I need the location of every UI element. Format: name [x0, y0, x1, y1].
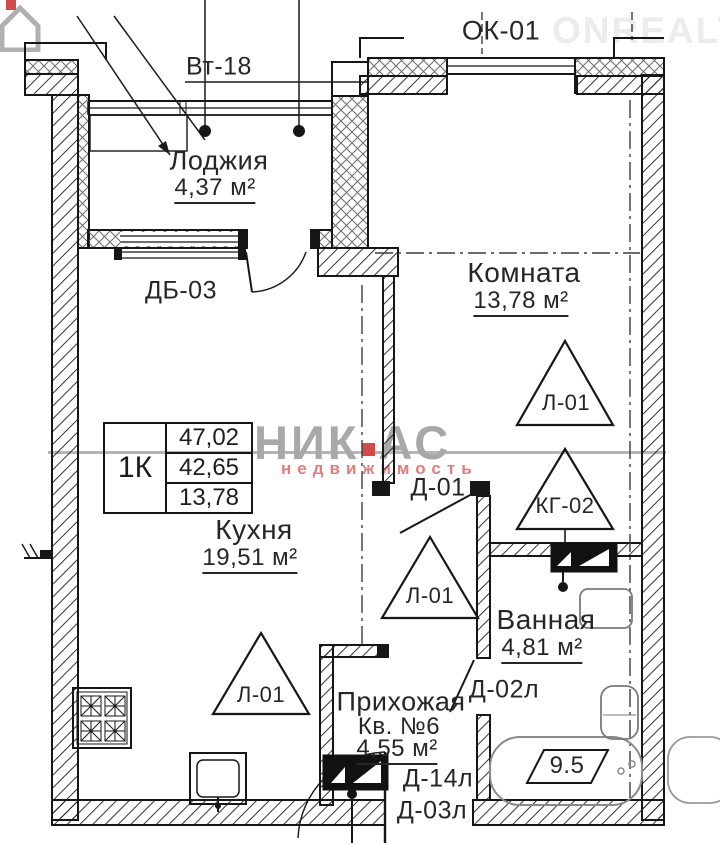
- window-loggia-sill: [114, 232, 246, 260]
- door-db03: [238, 228, 320, 292]
- stove: [73, 688, 131, 748]
- label-room-name: Комната: [467, 259, 580, 287]
- apartment-info-table: 1К 47,02 42,65 13,78: [103, 422, 253, 514]
- label-triangle-l01-hall: Л-01: [237, 684, 285, 706]
- vent-shaft-bathroom: [551, 543, 617, 592]
- neighbor-bathtub: [668, 737, 720, 803]
- label-kitchen-area: 19,51 м²: [202, 546, 297, 574]
- label-tub-value: 9.5: [550, 754, 585, 778]
- kitchen-sink: [190, 753, 246, 812]
- wall-end-cap: [377, 646, 388, 657]
- label-d02l: Д-02л: [469, 678, 539, 703]
- label-db03: ДБ-03: [145, 279, 217, 304]
- label-d03l: Д-03л: [397, 799, 467, 824]
- label-hall-area: 4,55 м²: [356, 737, 437, 765]
- label-d01: Д-01: [410, 476, 465, 501]
- label-hall-name: Прихожая: [336, 689, 465, 716]
- label-vt18: Вт-18: [186, 55, 252, 80]
- label-loggia-name: Лоджия: [170, 148, 269, 175]
- info-table-total-area: 47,02: [166, 423, 252, 453]
- label-loggia-area: 4,37 м²: [174, 176, 255, 204]
- info-table-room-area: 13,78: [166, 483, 252, 513]
- label-bathroom-name: Ванная: [497, 606, 596, 634]
- label-room-area: 13,78 м²: [473, 289, 568, 317]
- label-bathroom-area: 4,81 м²: [501, 636, 582, 664]
- info-table-type: 1К: [104, 423, 166, 513]
- floorplan-page: НИКАС недвижимость ONREALT: [0, 0, 720, 843]
- label-triangle-kg02: КГ-02: [535, 495, 594, 517]
- label-ok01: ОК-01: [462, 18, 540, 45]
- label-triangle-l01-room: Л-01: [542, 392, 590, 414]
- info-table-living-area: 42,65: [166, 453, 252, 483]
- toilet: [601, 686, 638, 739]
- label-triangle-l01-kitchen: Л-01: [406, 585, 454, 607]
- label-d14l: Д-14л: [403, 767, 473, 792]
- window-ok01: [447, 58, 575, 94]
- wall-section-mark: [22, 544, 52, 559]
- loggia-glazing: [88, 101, 332, 151]
- label-kitchen-name: Кухня: [215, 516, 292, 544]
